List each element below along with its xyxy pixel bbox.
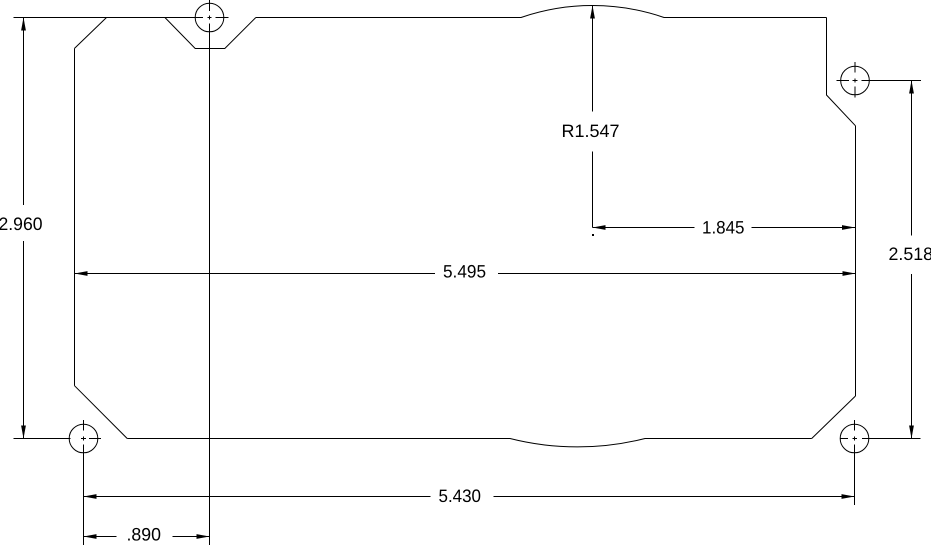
svg-text:1.845: 1.845 (702, 218, 745, 238)
svg-text:.890: .890 (127, 524, 162, 544)
svg-text:5.495: 5.495 (443, 262, 486, 282)
svg-text:5.430: 5.430 (439, 486, 482, 506)
svg-text:2.518: 2.518 (889, 244, 931, 264)
svg-text:R1.547: R1.547 (562, 121, 620, 141)
svg-text:2.960: 2.960 (0, 214, 43, 234)
